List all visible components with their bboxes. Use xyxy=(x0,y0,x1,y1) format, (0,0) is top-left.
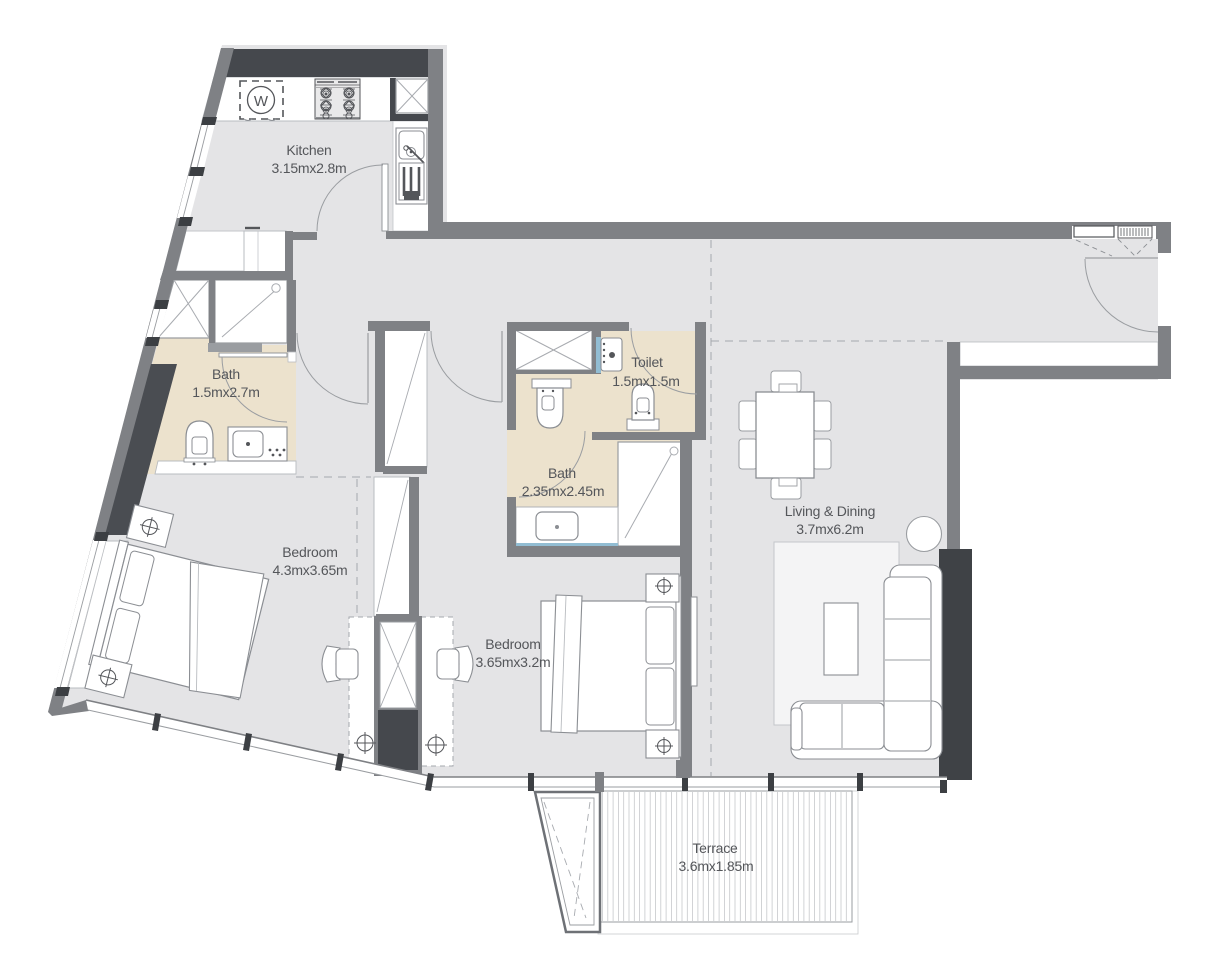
svg-text:Living & Dining: Living & Dining xyxy=(785,503,875,519)
svg-text:1.5mx2.7m: 1.5mx2.7m xyxy=(192,384,259,400)
svg-text:Bedroom: Bedroom xyxy=(485,636,540,652)
svg-text:3.6mx1.85m: 3.6mx1.85m xyxy=(678,858,753,874)
svg-text:Toilet: Toilet xyxy=(631,354,663,370)
svg-text:W: W xyxy=(254,93,269,110)
svg-text:4.3mx3.65m: 4.3mx3.65m xyxy=(272,562,347,578)
svg-text:Bedroom: Bedroom xyxy=(282,544,337,560)
svg-text:Bath: Bath xyxy=(548,465,576,481)
svg-text:1.5mx1.5m: 1.5mx1.5m xyxy=(612,373,679,389)
svg-text:2.35mx2.45m: 2.35mx2.45m xyxy=(522,483,605,499)
svg-text:3.65mx3.2m: 3.65mx3.2m xyxy=(475,654,550,670)
svg-text:Kitchen: Kitchen xyxy=(286,142,331,158)
svg-text:Terrace: Terrace xyxy=(692,840,738,856)
svg-text:3.15mx2.8m: 3.15mx2.8m xyxy=(271,160,346,176)
svg-text:Bath: Bath xyxy=(212,366,240,382)
svg-text:3.7mx6.2m: 3.7mx6.2m xyxy=(796,521,863,537)
